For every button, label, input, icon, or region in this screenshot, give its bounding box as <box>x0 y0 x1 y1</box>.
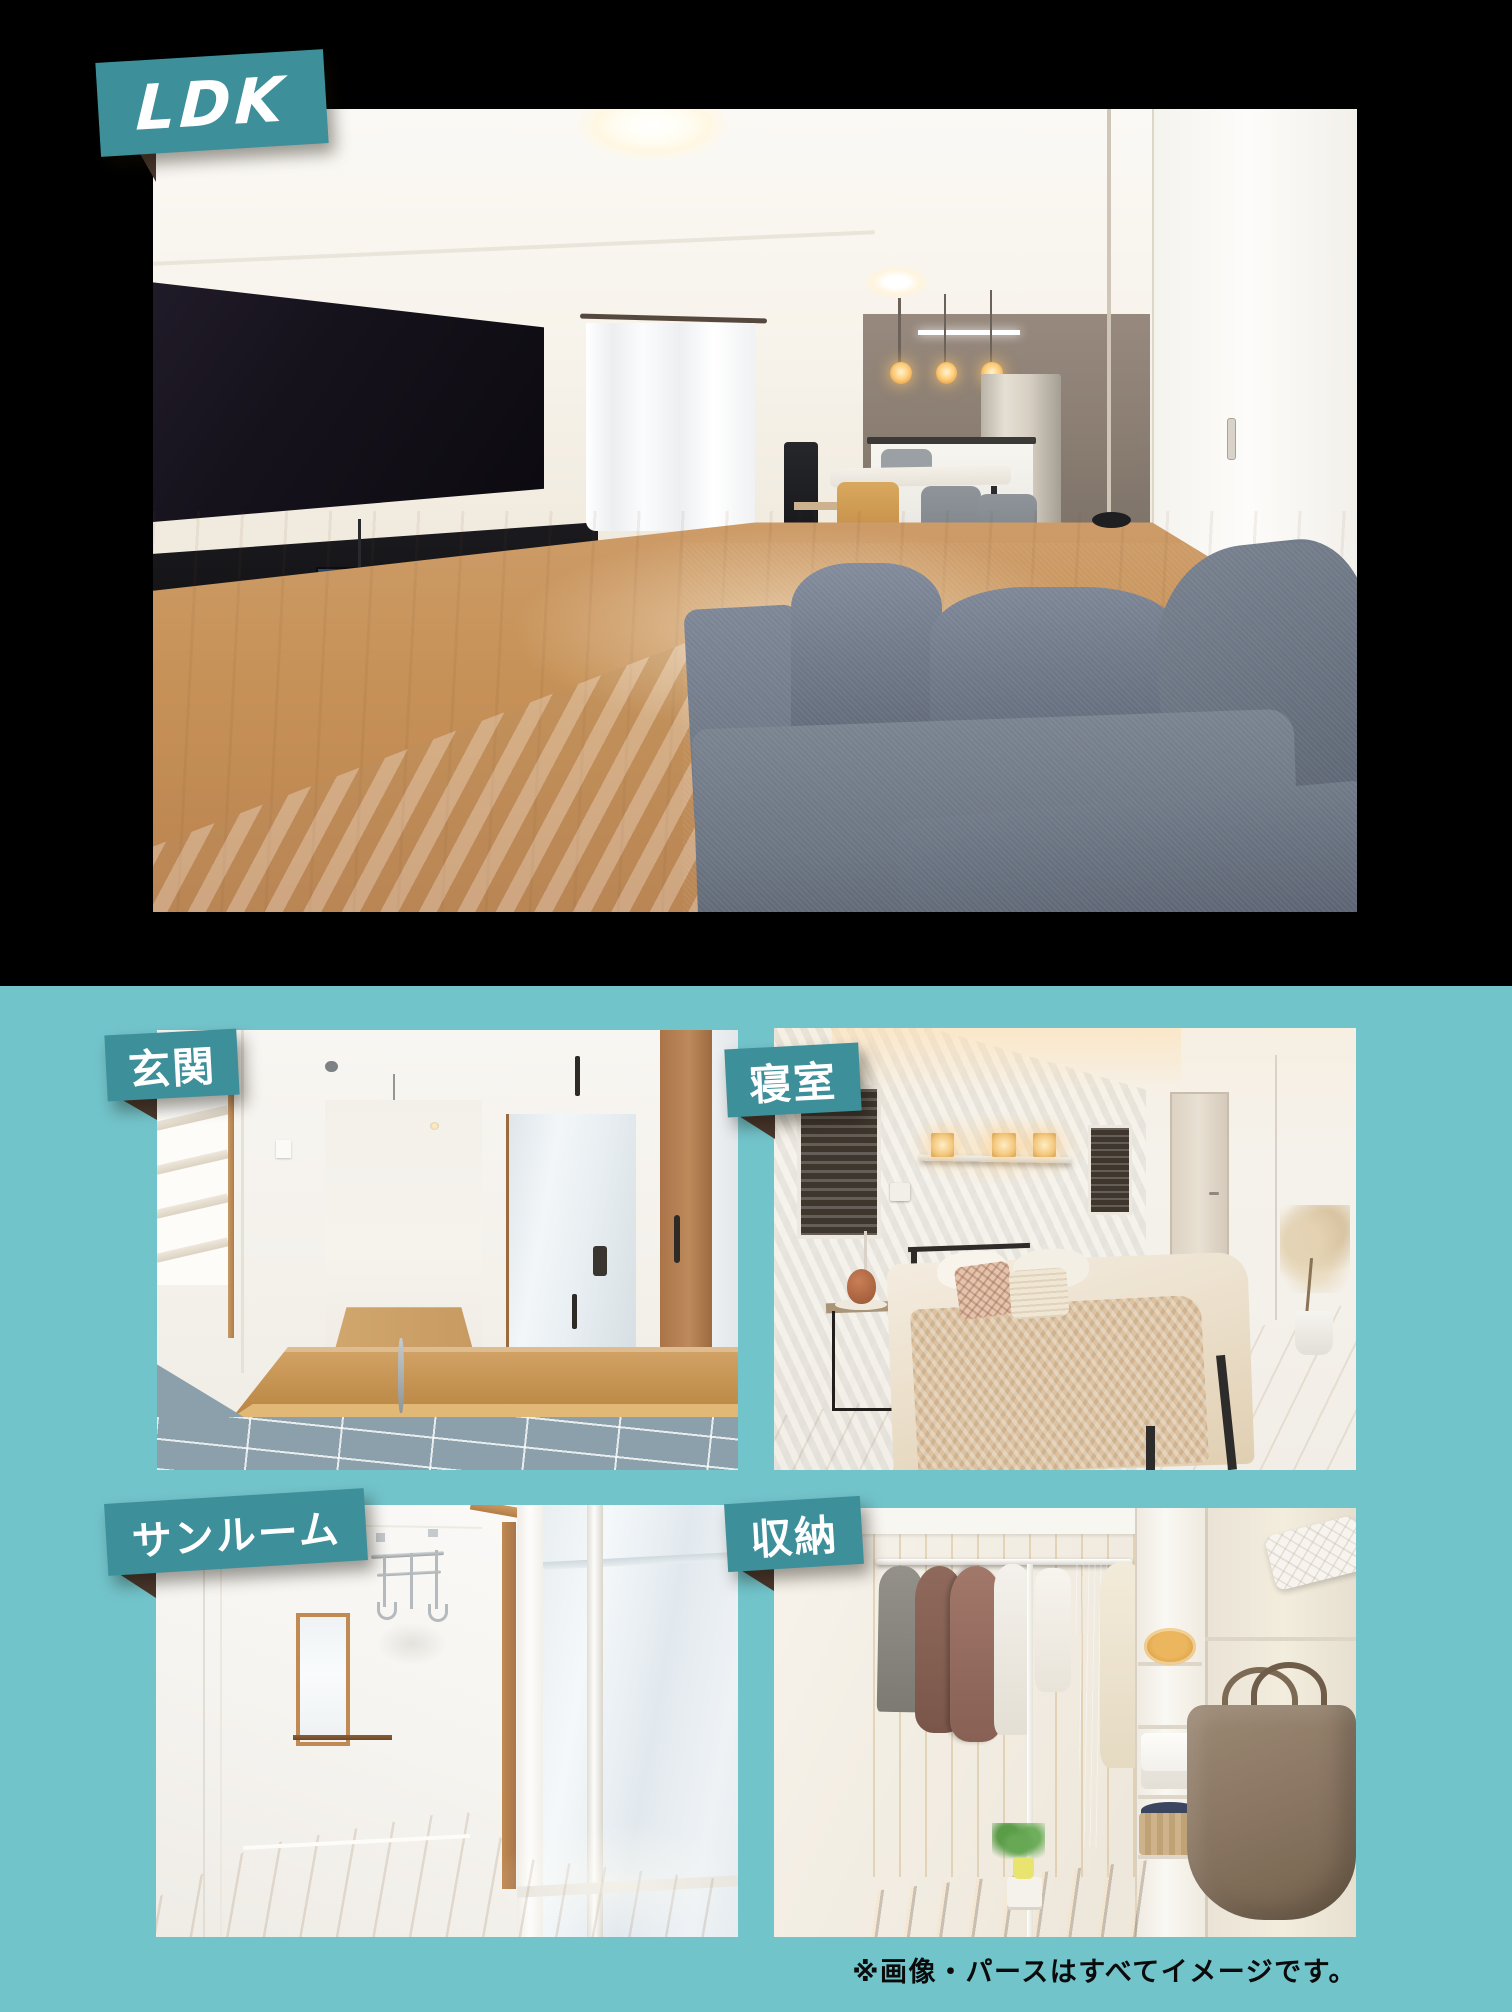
genkan-photo <box>157 1030 738 1470</box>
ldk-kitchen-ceiling-light <box>857 262 935 302</box>
closet-header-board <box>855 1508 1158 1534</box>
bedroom-vase <box>847 1269 876 1304</box>
closet-tote-bag <box>1187 1705 1356 1920</box>
badge-shinshitsu: 寝室 <box>724 1043 861 1118</box>
ldk-ceiling-light <box>550 109 755 173</box>
ldk-sofa-tweed-texture <box>683 543 1357 912</box>
ldk-pendant-cord-3 <box>990 290 992 366</box>
sunroom-rack-mount-2 <box>428 1529 437 1538</box>
sunroom-window-ledge <box>293 1735 392 1740</box>
ldk-door-handle <box>1227 418 1236 460</box>
bedroom-plant-pot <box>1295 1311 1333 1355</box>
closet-garment-bag-white <box>994 1564 1031 1736</box>
closet-rod <box>876 1559 1132 1564</box>
badge-genkan-label: 玄関 <box>126 1032 217 1098</box>
bedroom-lamp-2 <box>992 1133 1015 1157</box>
genkan-shoe-horn <box>398 1338 404 1413</box>
flyer-page: { "page": { "colors": { "black_bg": "#00… <box>0 0 1512 2012</box>
shuunou-photo <box>774 1508 1356 1937</box>
genkan-diffuser <box>593 1246 607 1277</box>
ldk-badge-fold <box>138 150 156 182</box>
genkan-shelf-edge <box>228 1083 234 1338</box>
sunroom-rack-mount-1 <box>376 1533 385 1542</box>
bedroom-wall-corner <box>1275 1055 1277 1320</box>
bedroom-ceiling-glow <box>832 1028 1181 1090</box>
genkan-tile-floor <box>157 1417 738 1470</box>
badge-shuunou-label: 収納 <box>748 1501 840 1567</box>
ldk-pendant-bulb-1 <box>890 362 912 384</box>
bedroom-cushion-diamond <box>954 1261 1016 1321</box>
disclaimer-text: ※画像・パースはすべてイメージです。 <box>852 1950 1357 1989</box>
sunroom-photo <box>156 1505 738 1937</box>
closet-blouse-white <box>1035 1568 1072 1692</box>
closet-straw-hat <box>1144 1628 1196 1664</box>
genkan-wall-corner <box>241 1030 244 1373</box>
closet-plant-pot <box>1013 1858 1034 1879</box>
ldk-pendant-cord-2 <box>944 294 946 366</box>
sunroom-rack-shadow <box>377 1622 447 1665</box>
badge-shuunou: 収納 <box>724 1496 864 1572</box>
sunroom-rack-drop-2 <box>410 1553 413 1609</box>
sunroom-floor-light-pool <box>494 1825 738 1937</box>
badge-ldk-label: LDK <box>135 62 289 145</box>
badge-genkan: 玄関 <box>104 1029 239 1102</box>
shinshitsu-photo <box>774 1028 1356 1470</box>
genkan-hallway-wall-tag <box>276 1140 291 1158</box>
ldk-kitchen-led-bar <box>918 330 1020 336</box>
ldk-pendant-cord-1 <box>898 298 900 366</box>
genkan-upper-cabinet <box>506 1030 657 1114</box>
bedroom-lamp-3 <box>1033 1133 1056 1157</box>
ldk-kitchen-counter <box>867 437 1036 444</box>
bedroom-plant-fluff <box>1280 1205 1350 1293</box>
genkan-step-front-edge <box>233 1404 738 1417</box>
sunroom-rack-drop-3 <box>435 1550 438 1608</box>
bedroom-window-blind-right <box>1088 1125 1132 1215</box>
badge-sunroom-label: サンルーム <box>130 1497 342 1568</box>
genkan-right-door-handle <box>674 1215 680 1263</box>
closet-right-shelf-edge <box>1205 1637 1356 1642</box>
ldk-robot-vacuum <box>1092 512 1131 528</box>
bedroom-knit-throw <box>909 1295 1208 1470</box>
bedroom-bed-leg <box>1146 1426 1154 1470</box>
badge-ldk: LDK <box>95 49 328 157</box>
bedroom-cushion-cream <box>1008 1267 1069 1320</box>
genkan-lower-cabinet-handle <box>572 1294 577 1329</box>
sunroom-small-window <box>296 1613 351 1746</box>
genkan-pendant-wire <box>393 1074 395 1103</box>
sunroom-rack-drop-1 <box>383 1555 386 1607</box>
badge-shinshitsu-label: 寝室 <box>747 1047 838 1113</box>
bedroom-lamp-1 <box>931 1133 954 1157</box>
ldk-curtain <box>586 323 755 532</box>
ldk-photo <box>153 109 1357 912</box>
bedroom-door-handle <box>1209 1192 1218 1196</box>
genkan-upper-cabinet-handle <box>575 1056 580 1096</box>
closet-stool <box>1007 1877 1042 1907</box>
